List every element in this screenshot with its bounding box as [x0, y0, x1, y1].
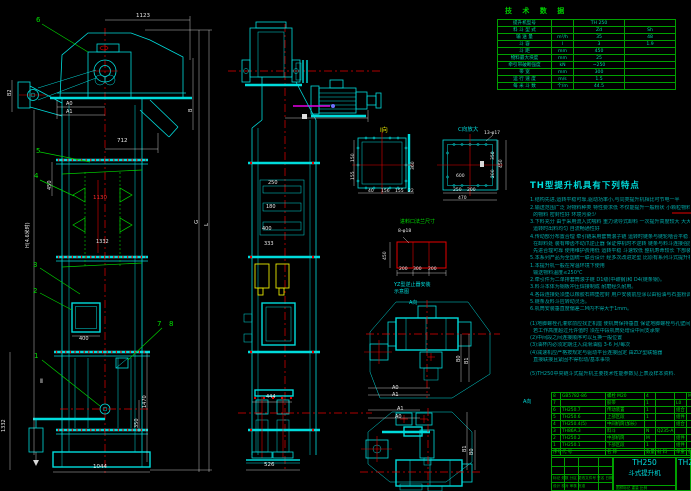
note-line: 在卸料处 装有带齿不动爪逆止器 保证停机时不逆转 链条与料斗连接强度高 工具拆装… [530, 241, 690, 248]
table-cell: TH250.4(5) [561, 421, 606, 428]
table-cell [656, 407, 675, 414]
note-line: 2.输送范围广泛 对物料种类 特性要求低 不仅能提升一般粉状 小颗粒物料 也可提… [530, 205, 690, 212]
table-cell: 1.5 [574, 76, 625, 83]
table-row: 斗 距mm450 [498, 48, 676, 55]
table-cell [645, 421, 656, 428]
table-cell: 中部机筒 [606, 435, 645, 442]
table-cell: 5 [552, 414, 561, 421]
table-cell: 螺栓 M20 [606, 393, 645, 400]
table-cell: 组合 [675, 407, 687, 414]
table-cell: 1 [645, 414, 656, 421]
table-cell: 4 [552, 421, 561, 428]
dim-label: 712 [117, 139, 128, 145]
table-cell: TH250.1 [561, 442, 606, 449]
table-cell: 料斗 [606, 428, 645, 435]
note-line [530, 364, 690, 371]
title-block-right-cell: TH2 [676, 457, 691, 491]
dim-label: 200 [399, 268, 408, 273]
dim-label: 22 [408, 190, 414, 195]
table-cell [656, 435, 675, 442]
dim-label: Ⅰ向 [380, 128, 388, 134]
table-cell: 7 [552, 400, 561, 407]
title-block-model-right: TH2 [677, 458, 690, 467]
note-line: 1.本提升机一般在常温环境下使用 [530, 263, 690, 270]
title-block-revision-grid: 标记 处数 分区 更改文件号 签名 日期 设计 校对 审核 批准 [551, 457, 613, 491]
detail-view-i [352, 132, 414, 194]
table-cell: TH250.2 [561, 435, 606, 442]
dim-label: 470 [458, 197, 467, 202]
note-line: 先进合理可靠 使用维护费用低 运转平稳 斗速较低 整机寿命较长 下部装有张紧装置 [530, 248, 690, 255]
dim-label: 450 [500, 159, 505, 168]
table-row: 7胶带1L0 [552, 400, 691, 407]
dim-label: A向 [409, 301, 417, 306]
table-cell [552, 27, 574, 34]
dim-label: B1 [463, 445, 468, 452]
dim-label: Ⅱ [40, 379, 43, 385]
dim-label: A0 [392, 386, 399, 391]
table-cell: 48 [625, 34, 676, 41]
note-line: 运转时出料均匀 自流畅通性好 [530, 226, 690, 233]
table-row: 斗 容l31.9 [498, 41, 676, 48]
table-cell: 提升机型号 [498, 20, 552, 27]
dim-label: 300 [413, 268, 422, 273]
title-block-name-cell: TH250 斗式提升机 图样标记 重量 比例 [613, 457, 676, 491]
note-line: (1)地脚螺栓孔灌浆前应找正机座 使机筒保持垂直 保证地脚螺栓与孔壁间距均匀 [530, 321, 690, 328]
dim-label: B0 [470, 448, 475, 455]
dim-label: 1130 [93, 196, 107, 202]
table-cell [625, 76, 676, 83]
table-cell: 上部区段 [606, 414, 645, 421]
table-cell: TH86A.3 [561, 428, 606, 435]
note-line: 直接联接且紧固不得松动/基本事项 [530, 357, 690, 364]
table-cell: 1 [645, 407, 656, 414]
table-cell [675, 428, 687, 435]
dim-label: 450 [48, 180, 53, 190]
table-row: 带 宽mm300 [498, 69, 676, 76]
dim-label: H(4.6米时) [26, 222, 31, 248]
side-view [228, 22, 381, 470]
dim-label: B2 [8, 89, 13, 96]
dim-label: A1 [66, 110, 73, 115]
table-cell [687, 442, 691, 449]
note-line: 6.机筒安装垂直度偏差二M内不得大于1mm。 [530, 306, 690, 313]
note-line [530, 313, 690, 320]
table-cell: 斗 容 [498, 41, 552, 48]
table-cell: 料 斗 型 式 [498, 27, 552, 34]
cad-canvas: 技 术 数 据 提升机型号TH 250料 斗 型 式ZdSh输 送 量m³/h3… [0, 0, 691, 491]
table-cell: 运 行 速 度 [498, 76, 552, 83]
dim-label: 360 [412, 161, 417, 170]
dim-label: 13-φ17 [484, 132, 500, 137]
table-cell: 组件 [675, 442, 687, 449]
dim-label: G [195, 220, 201, 224]
note-line: (4)减速机应严格按规定与驱动平台连接固定 由ZLY型联轴器 [530, 350, 690, 357]
table-cell: 胶带 [606, 400, 645, 407]
table-cell: 1 [645, 442, 656, 449]
dim-label: 40 [368, 190, 374, 195]
dim-label: A0 [395, 415, 402, 420]
balloon-label: 3 [33, 262, 37, 269]
dim-label: 1332 [96, 240, 109, 245]
notes-title: TH型提升机具有下列特点 [530, 180, 690, 192]
note-line: 4.传动部分布置合理 牵引链采用套筒滚子链 运转时链条与链轮啮合平稳 工作噪音小… [530, 234, 690, 241]
table-cell: 传动装置 [606, 407, 645, 414]
table-cell: mm [552, 55, 574, 62]
dim-label: 180 [266, 205, 276, 210]
note-line: 4.各段连接处须垫以橡胶石棉垫密封 用户安装前应涂以由铅油与石墨粉调和的密封膏再… [530, 292, 690, 299]
table-cell: mm [552, 48, 574, 55]
dim-label: 400 [79, 337, 89, 342]
table-cell: l [552, 41, 574, 48]
table-cell [687, 414, 691, 421]
table-cell: 8 [552, 393, 561, 400]
dim-label: 450 [384, 251, 389, 260]
table-row: 8GB5782-86螺栓 M204M20 [552, 393, 691, 400]
dim-label: A1 [397, 407, 404, 412]
table-cell: 1 [645, 400, 656, 407]
table-cell: 6 [552, 407, 561, 414]
dim-label: 200 [467, 189, 476, 194]
table-cell: M [645, 435, 656, 442]
dim-label: 250 [268, 181, 278, 186]
table-cell: 35 [574, 34, 625, 41]
table-row: 料 斗 型 式ZdSh [498, 27, 676, 34]
dim-label: 155 [395, 190, 404, 195]
dim-label: 155 [352, 171, 357, 180]
table-cell: 带 宽 [498, 69, 552, 76]
dim-label: A向 [523, 400, 531, 405]
table-row: 牵引带破断强度kN~250 [498, 62, 676, 69]
dim-label: B0 [457, 355, 462, 362]
dim-label: 250 [453, 189, 462, 194]
dim-label: C向放大 [458, 128, 478, 134]
note-line: 输送物料温度≤250℃ [530, 270, 690, 277]
table-cell [656, 414, 675, 421]
table-cell: 牵引带破断强度 [498, 62, 552, 69]
table-cell: 下部区段 [606, 442, 645, 449]
table-cell: 25 [574, 55, 625, 62]
note-line: 3.料斗本体为钢板冲压焊接制成 耐磨经久耐用。 [530, 284, 690, 291]
table-cell: N [645, 428, 656, 435]
table-cell: L0 [675, 400, 687, 407]
note-line: 3.下料充分 由于采用流入式喂料 重力诱导式卸料 一次提升高度较大 大大减少回料… [530, 219, 690, 226]
table-cell: 斗 距 [498, 48, 552, 55]
table-cell: 44.5 [574, 83, 625, 90]
table-row: 6TH250.7传动装置1组合 [552, 407, 691, 414]
dim-label: 526 [264, 463, 275, 469]
title-block-model: TH250 [614, 458, 675, 467]
table-cell: 每 米 斗 数 [498, 83, 552, 90]
note-line: (3)油杯内必须定期注入润滑油脂 3-6 月/每次 [530, 342, 690, 349]
table-row: 5TH250.6上部区段1组件 [552, 414, 691, 421]
note-line: 5.链条及料斗应转动灵活。 [530, 299, 690, 306]
table-cell [625, 83, 676, 90]
note-line: 2.牵引件为二单排套筒滚子链 D1级(中碳钢)和 D4(链条钢)。 [530, 277, 690, 284]
table-cell [552, 20, 574, 27]
table-cell [656, 400, 675, 407]
table-cell: GB5782-86 [561, 393, 606, 400]
table-row: 4TH250.4(5)中间机筒(加长)组合 [552, 421, 691, 428]
dim-label: 200 [428, 268, 437, 273]
table-cell [625, 55, 676, 62]
table-cell [625, 20, 676, 27]
table-cell: 输 送 量 [498, 34, 552, 41]
table-row: 3TH86A.3料斗NQ235-A [552, 428, 691, 435]
table-cell: 物料最大块度 [498, 55, 552, 62]
front-view-dimensions [10, 16, 212, 472]
note-line: (5)TH250中央链斗式提升机主要技术性能参数见上表及样本资料. [530, 371, 690, 378]
table-cell: TH250.6 [561, 414, 606, 421]
note-line: (2)中间段之间连接顺序可以互换一般位置 [530, 335, 690, 342]
table-row: 输 送 量m³/h3548 [498, 34, 676, 41]
table-cell: 组件 [675, 435, 687, 442]
table-cell: 4 [645, 393, 656, 400]
note-line: 若工作高度超过允许值时 须在中段机筒处增设中间支承架 [530, 328, 690, 335]
note-line: 1.结构先进,运转平稳可靠,驱动功率小,与同类提升机相比可节电一半 [530, 197, 690, 204]
notes-block: TH型提升机具有下列特点 1.结构先进,运转平稳可靠,驱动功率小,与同类提升机相… [530, 180, 690, 379]
table-cell [656, 442, 675, 449]
table-cell: 2 [552, 435, 561, 442]
table-cell: m³/h [552, 34, 574, 41]
balloon-label: 8 [169, 321, 173, 328]
table-row: 物料最大块度mm25 [498, 55, 676, 62]
table-cell [625, 62, 676, 69]
table-row: 运 行 速 度m/s1.5 [498, 76, 676, 83]
tech-data-table: 提升机型号TH 250料 斗 型 式ZdSh输 送 量m³/h3548斗 容l3… [497, 19, 676, 90]
dim-label: B1 [465, 357, 470, 364]
table-cell: 中间机筒(加长) [606, 421, 645, 428]
note-line: 5.本系列产品为全国统一联合设计 经多次改进定型 比原有系列斗式提升机的性能指标… [530, 255, 690, 262]
table-cell: 组合 [675, 421, 687, 428]
table-cell: M20 [687, 393, 691, 400]
table-cell: mm [552, 69, 574, 76]
balloon-label: 7 [157, 321, 161, 328]
table-cell: kN [552, 62, 574, 69]
table-row: 每 米 斗 数个/m44.5 [498, 83, 676, 90]
table-cell: TH250.7 [561, 407, 606, 414]
dim-label: 8-φ18 [398, 230, 411, 235]
balloon-label: 2 [33, 288, 37, 295]
notes-lines: 1.结构先进,运转平稳可靠,驱动功率小,与同类提升机相比可节电一半2.输送范围广… [530, 197, 690, 378]
balloon-label: 6 [36, 17, 40, 24]
table-row: 1TH250.1下部区段1组件 [552, 442, 691, 449]
dim-label: YZ型逆止器安装 [394, 283, 430, 288]
table-cell [625, 69, 676, 76]
dim-label: 400 [262, 227, 272, 232]
title-block-sign-line: 设计 校对 审核 批准 [553, 484, 585, 489]
table-cell: TH 250 [574, 20, 625, 27]
table-cell [561, 400, 606, 407]
dim-label: 200 [492, 169, 497, 178]
table-cell [687, 400, 691, 407]
table-cell [687, 435, 691, 442]
title-block-name: 斗式提升机 [614, 467, 675, 477]
dim-label: 350 [492, 151, 497, 160]
dim-label: 1044 [93, 465, 107, 471]
dim-label: 600 [456, 175, 465, 180]
table-cell [687, 428, 691, 435]
table-cell: 3 [574, 41, 625, 48]
dim-label: 示意图 [394, 290, 409, 295]
table-cell: 3 [552, 428, 561, 435]
balloon-label: 5 [36, 148, 40, 155]
table-cell [687, 421, 691, 428]
drive-top-view-1 [364, 300, 500, 398]
dim-label: 1332 [2, 419, 7, 432]
dim-label: 333 [264, 242, 274, 247]
table-cell: ~250 [574, 62, 625, 69]
dim-label: 156 [381, 190, 390, 195]
table-cell: 组件 [675, 414, 687, 421]
table-cell [625, 48, 676, 55]
front-view [18, 24, 192, 474]
table-cell: 个/m [552, 83, 574, 90]
table-row: 提升机型号TH 250 [498, 20, 676, 27]
dim-label: L [205, 223, 211, 226]
title-block-scale-line: 图样标记 重量 比例 [616, 485, 675, 491]
dim-label: 444 [266, 395, 276, 400]
bom-table: 8GB5782-86螺栓 M204M207胶带1L06TH250.7传动装置1组… [551, 392, 691, 456]
dim-label: A1 [392, 393, 399, 398]
table-cell [687, 407, 691, 414]
table-cell: 1.9 [625, 41, 676, 48]
table-cell [675, 393, 687, 400]
balloon-label: 1 [34, 353, 38, 360]
dim-label: 1470 [143, 395, 148, 408]
balloon-label: 进料口法兰尺寸 [400, 220, 435, 225]
table-cell [656, 421, 675, 428]
dim-label: B [189, 109, 194, 112]
dim-label: A0 [66, 102, 73, 107]
table-cell: 450 [574, 48, 625, 55]
table-cell: Zd [574, 27, 625, 34]
dim-label: 350 [135, 418, 140, 428]
table-cell [656, 393, 675, 400]
note-line: 的物料 密封性好 环境污染少 [530, 212, 690, 219]
balloon-label: 4 [34, 173, 38, 180]
dim-label: 1123 [136, 14, 150, 20]
table-cell: Q235-A [656, 428, 675, 435]
tech-table-title: 技 术 数 据 [505, 6, 568, 16]
table-cell: Sh [625, 27, 676, 34]
table-cell: m/s [552, 76, 574, 83]
table-row: 2TH250.2中部机筒M组件 [552, 435, 691, 442]
table-cell: 1 [552, 442, 561, 449]
table-cell: 300 [574, 69, 625, 76]
dim-label: 150 [352, 153, 357, 162]
title-block-rev-line: 标记 处数 分区 更改文件号 签名 日期 [553, 476, 613, 481]
